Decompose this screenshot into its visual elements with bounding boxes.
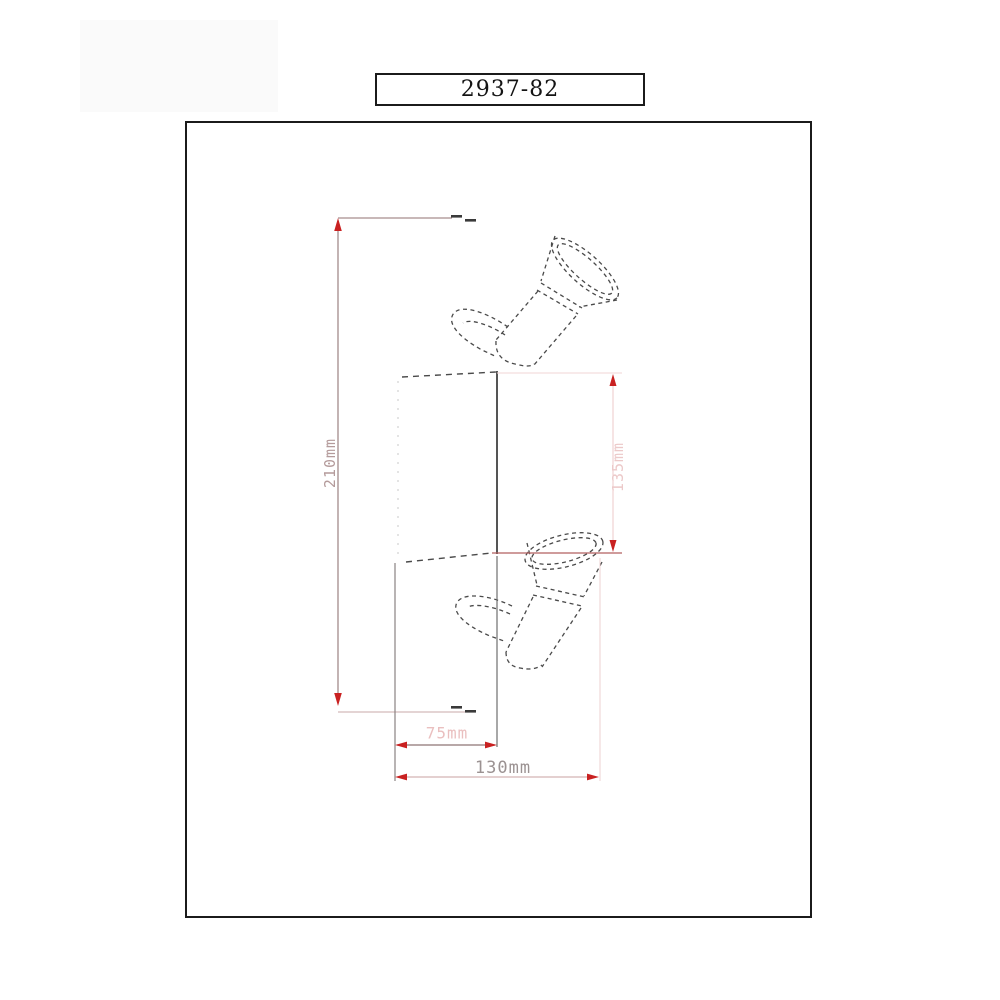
lower-shade-side-left	[527, 543, 537, 585]
dim-arrow-right-75	[485, 742, 497, 749]
upper-handle-inner	[463, 321, 505, 335]
lower-neck-ring-1	[536, 586, 585, 597]
upper-body-base	[496, 341, 534, 366]
upper-body-right	[534, 316, 576, 365]
dim-arrow-right-130	[587, 774, 599, 781]
upper-shade-side-left	[541, 236, 555, 281]
lower-handle	[456, 596, 512, 641]
dim-label-inner-width: 75mm	[426, 724, 469, 743]
dim-label-overall-height: 210mm	[321, 438, 339, 488]
break-mark-bottom-2	[465, 710, 476, 713]
dim-label-body-height: 135mm	[609, 442, 627, 492]
upper-handle	[452, 309, 508, 357]
fixture-bar	[398, 371, 497, 562]
lower-spot-head	[456, 526, 607, 669]
upper-neck-ring-2	[537, 290, 578, 314]
dim-arrow-left-75	[395, 742, 407, 749]
dim-arrow-up	[610, 374, 617, 386]
drawing-sheet: 2937-82	[0, 0, 1000, 1000]
dim-widths	[395, 556, 600, 781]
break-mark-bottom-1	[451, 706, 462, 709]
break-mark-top-2	[465, 219, 476, 222]
dim-arrow-down	[334, 693, 342, 706]
upper-neck-ring-1	[541, 283, 582, 308]
upper-spot-head	[452, 229, 627, 366]
bar-bottom-edge	[406, 553, 491, 562]
upper-shade-rim-inner	[551, 237, 619, 301]
dim-arrow-down	[610, 540, 617, 552]
upper-shade-side-right	[579, 300, 617, 307]
dim-arrow-left-130	[395, 774, 407, 781]
break-marks	[451, 215, 476, 713]
lower-neck-ring-2	[533, 595, 582, 606]
dim-label-overall-width: 130mm	[475, 758, 531, 778]
lamp-technical-drawing	[0, 0, 1000, 1000]
bar-top-edge	[402, 372, 496, 377]
break-mark-top-1	[451, 215, 462, 218]
lower-shade-rim-outer	[521, 526, 606, 576]
dim-body-height	[492, 373, 622, 553]
dim-overall-height	[334, 218, 470, 712]
lower-body-base	[506, 652, 542, 669]
lower-shade-rim-inner	[529, 532, 598, 569]
dim-arrow-up	[334, 218, 342, 231]
lower-body-right	[542, 608, 581, 667]
lower-shade-side-right	[584, 562, 602, 596]
upper-shade-rim-outer	[543, 229, 627, 309]
lower-handle-inner	[468, 605, 510, 614]
